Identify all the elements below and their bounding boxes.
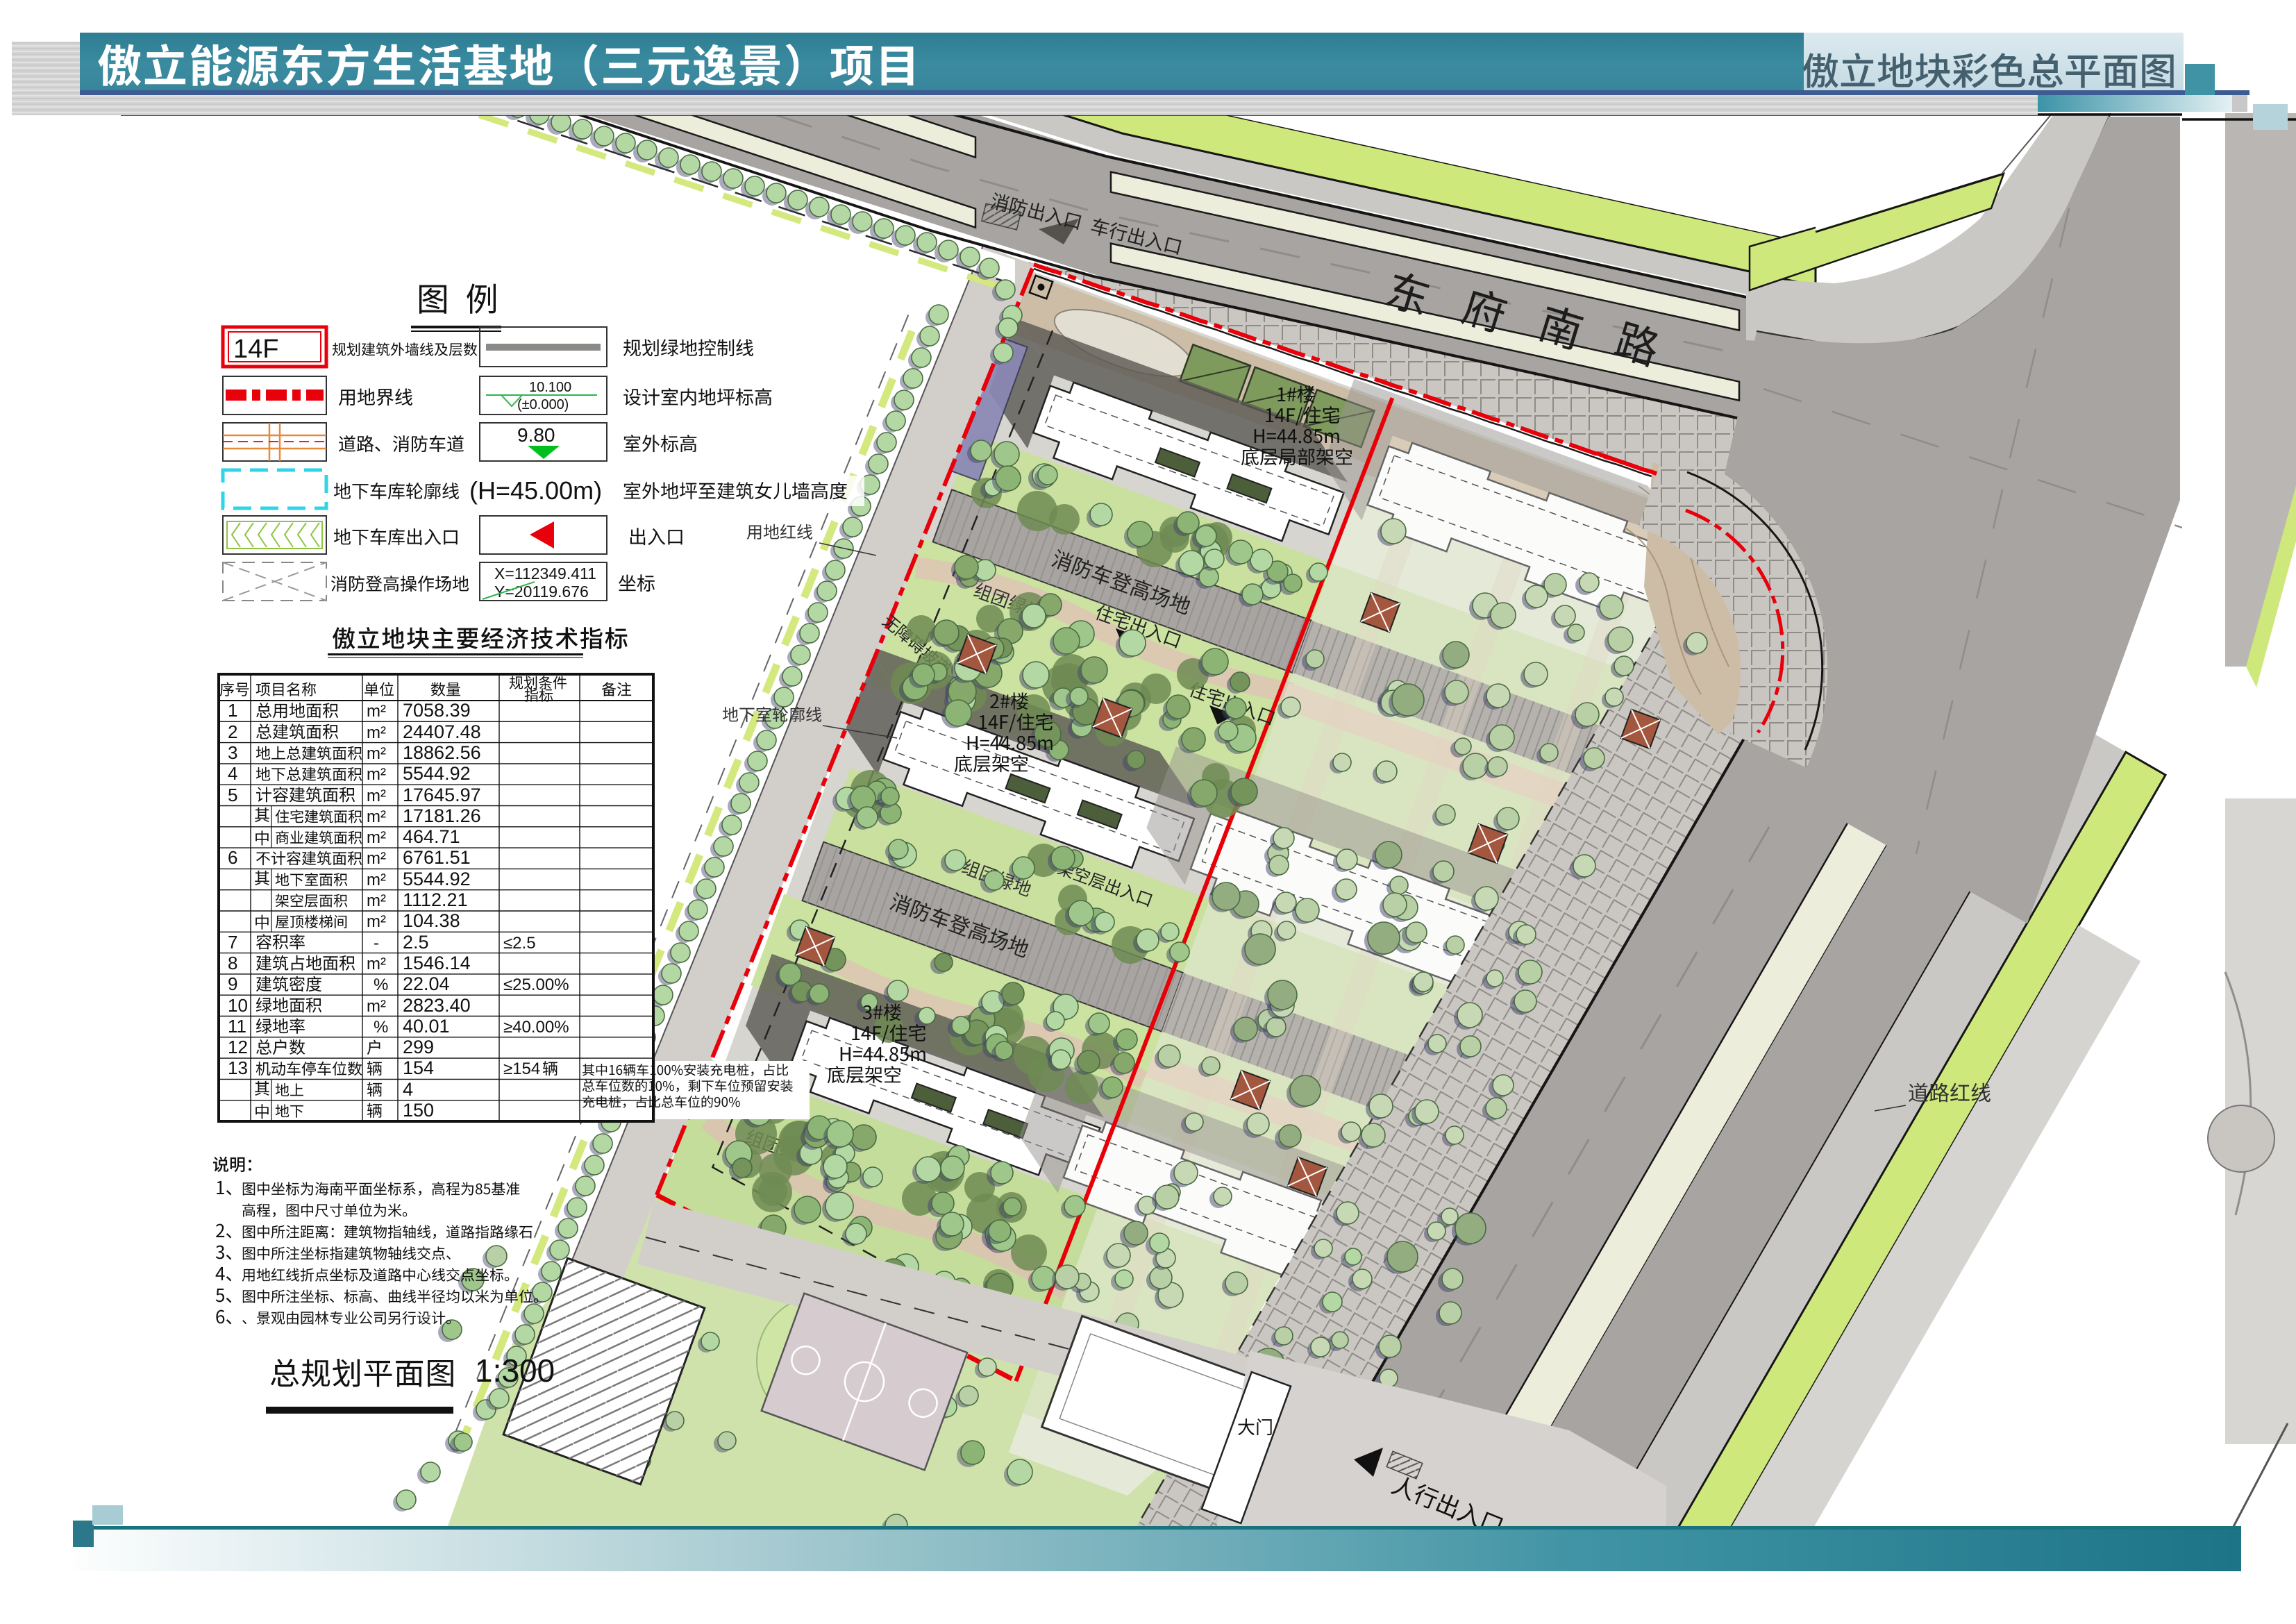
svg-text:-: -: [374, 934, 379, 953]
svg-text:5544.92: 5544.92: [403, 763, 471, 784]
svg-text:1112.21: 1112.21: [403, 889, 468, 910]
svg-text:%: %: [374, 1018, 388, 1037]
svg-text:m²: m²: [367, 891, 386, 910]
svg-text:≤2.5: ≤2.5: [503, 934, 536, 953]
svg-text:299: 299: [403, 1037, 434, 1057]
svg-text:Y=20119.676: Y=20119.676: [494, 583, 589, 601]
svg-text:17645.97: 17645.97: [403, 785, 481, 805]
svg-text:13: 13: [228, 1057, 248, 1078]
svg-text:m²: m²: [367, 849, 386, 868]
svg-text:(±0.000): (±0.000): [517, 397, 569, 412]
svg-text:11: 11: [228, 1016, 246, 1037]
svg-text:9: 9: [228, 973, 237, 994]
svg-text:40.01: 40.01: [403, 1016, 450, 1037]
svg-text:m²: m²: [367, 723, 386, 742]
svg-text:m²: m²: [367, 912, 386, 931]
svg-text:2: 2: [228, 721, 237, 742]
svg-text:6: 6: [228, 847, 237, 868]
svg-text:1546.14: 1546.14: [403, 953, 471, 973]
svg-text:≥40.00%: ≥40.00%: [503, 1018, 569, 1037]
svg-text:≤25.00%: ≤25.00%: [503, 976, 569, 994]
svg-text:8: 8: [228, 953, 237, 973]
svg-text:5: 5: [228, 785, 237, 805]
svg-text:22.04: 22.04: [403, 973, 450, 994]
svg-text:6761.51: 6761.51: [403, 847, 471, 868]
svg-text:m²: m²: [367, 807, 386, 826]
svg-text:10.100: 10.100: [529, 380, 571, 395]
svg-text:1:300: 1:300: [475, 1353, 555, 1389]
svg-text:7: 7: [228, 932, 237, 953]
svg-text:X=112349.411: X=112349.411: [494, 564, 596, 583]
svg-text:m²: m²: [367, 828, 386, 847]
svg-text:m²: m²: [367, 997, 386, 1016]
svg-text:150: 150: [403, 1100, 434, 1121]
svg-text:1: 1: [228, 700, 237, 721]
svg-text:5544.92: 5544.92: [403, 869, 471, 889]
svg-text:24407.48: 24407.48: [403, 721, 481, 742]
svg-text:4: 4: [228, 763, 237, 784]
svg-text:(H=45.00m): (H=45.00m): [469, 476, 602, 505]
svg-text:m²: m²: [367, 787, 386, 805]
svg-text:m²: m²: [367, 702, 386, 721]
svg-text:14F: 14F: [233, 335, 278, 364]
svg-text:m²: m²: [367, 744, 386, 763]
svg-text:7058.39: 7058.39: [403, 700, 471, 721]
svg-text:104.38: 104.38: [403, 910, 460, 931]
svg-text:2823.40: 2823.40: [403, 995, 471, 1016]
svg-text:%: %: [374, 976, 388, 994]
svg-text:9.80: 9.80: [517, 424, 555, 446]
svg-text:12: 12: [228, 1037, 248, 1057]
svg-text:m²: m²: [367, 955, 386, 973]
svg-text:10: 10: [228, 995, 248, 1016]
svg-text:≥154: ≥154: [503, 1060, 540, 1078]
svg-text:18862.56: 18862.56: [403, 742, 481, 763]
svg-text:4: 4: [403, 1079, 413, 1100]
svg-text:2.5: 2.5: [403, 932, 429, 953]
svg-text:m²: m²: [367, 871, 386, 889]
svg-text:154: 154: [403, 1057, 434, 1078]
svg-text:17181.26: 17181.26: [403, 805, 481, 826]
svg-text:3: 3: [228, 742, 237, 763]
svg-text:464.71: 464.71: [403, 826, 460, 847]
svg-text:m²: m²: [367, 765, 386, 784]
